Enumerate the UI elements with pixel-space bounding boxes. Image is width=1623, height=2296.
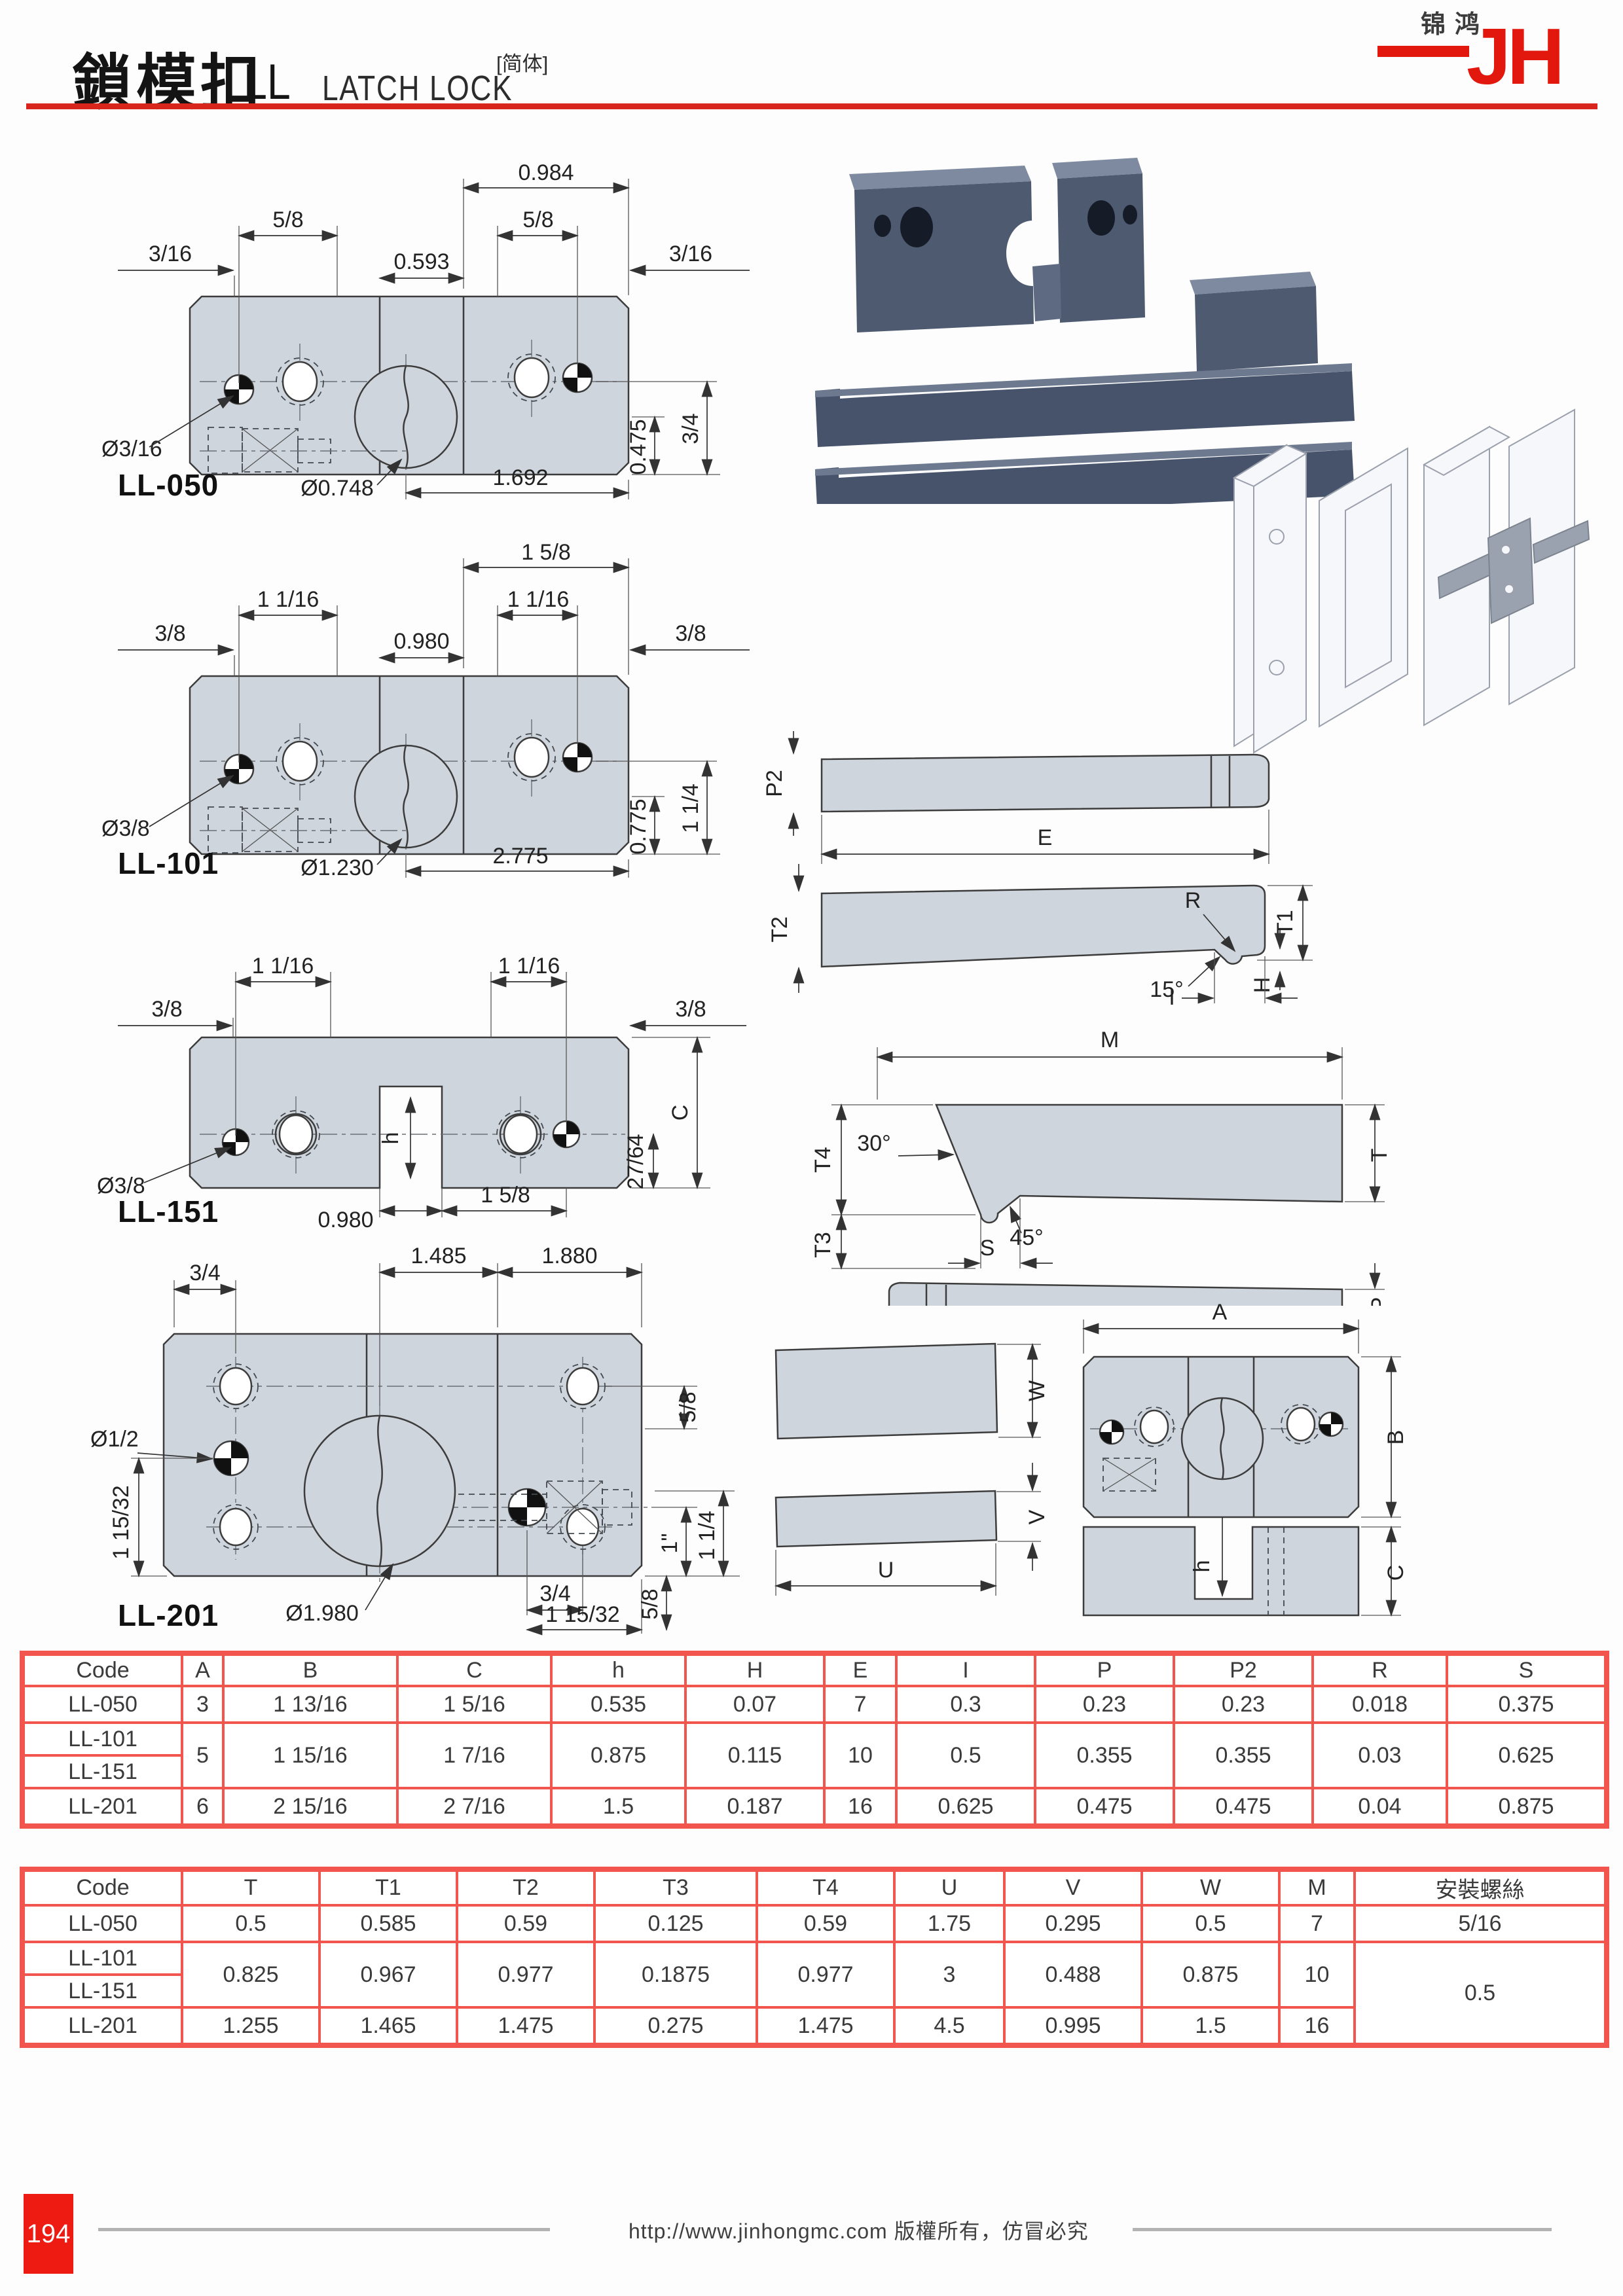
- col-header: T4: [757, 1869, 894, 1905]
- table-row: LL-101 5 1 15/16 1 7/16 0.875 0.115 10 0…: [22, 1723, 1607, 1755]
- cell: 0.475: [1174, 1788, 1313, 1826]
- dim-label: 1 15/32: [109, 1485, 134, 1559]
- ll201-part: [164, 1334, 651, 1583]
- col-header: P2: [1174, 1653, 1313, 1686]
- dim-label: 0.475: [626, 419, 651, 475]
- cell: 0.535: [551, 1686, 685, 1723]
- col-header: A: [182, 1653, 223, 1686]
- col-header: T1: [319, 1869, 457, 1905]
- cell: 4.5: [894, 2007, 1004, 2045]
- dim-label: I: [1169, 985, 1175, 1008]
- cell: 7: [824, 1686, 896, 1723]
- ll151-part: [190, 1037, 629, 1188]
- cell: 0.295: [1004, 1905, 1142, 1942]
- cell: 0.625: [1447, 1723, 1607, 1788]
- dim-label: 1": [657, 1534, 682, 1554]
- cell: 16: [824, 1788, 896, 1826]
- language-note: [简体]: [496, 47, 548, 77]
- cell: 0.375: [1447, 1686, 1607, 1723]
- cell: 0.5: [1355, 1942, 1607, 2045]
- page-title-en: LATCH LOCK: [322, 68, 513, 109]
- cell: 0.977: [757, 1942, 894, 2007]
- table-header-row: Code T T1 T2 T3 T4 U V W M 安裝螺絲: [22, 1869, 1607, 1905]
- cell: 16: [1279, 2007, 1355, 2045]
- dim-label: h: [378, 1132, 403, 1145]
- dim-label: 1 1/16: [507, 587, 570, 612]
- dimension-table-1: Code A B C h H E I P P2 R S LL-050 3 1 1…: [20, 1651, 1609, 1829]
- dim-label: T1: [1273, 910, 1298, 936]
- dim-label: 5/8: [522, 207, 553, 232]
- dim-label: R: [1185, 888, 1201, 913]
- dim-label: U: [878, 1558, 894, 1583]
- dim-label: 3/16: [669, 242, 712, 266]
- cell: 0.825: [182, 1942, 319, 2007]
- catalog-page: 鎖模扣 LL LATCH LOCK [简体] 锦鸿 JH: [0, 0, 1623, 2296]
- cell: LL-201: [22, 2007, 182, 2045]
- page-number: 194: [27, 2219, 71, 2249]
- dim-label: 1.485: [410, 1244, 466, 1268]
- cell: 1.75: [894, 1905, 1004, 1942]
- logo-mark: JH: [1467, 12, 1561, 92]
- dim-label: C: [668, 1105, 693, 1121]
- col-header: I: [896, 1653, 1035, 1686]
- ll050-part: [190, 296, 629, 480]
- cell: 0.125: [594, 1905, 757, 1942]
- page-number-badge: 194: [24, 2194, 73, 2274]
- dim-label: 0.593: [393, 249, 449, 274]
- dim-label: 15°: [1150, 977, 1183, 1002]
- dim-label: 1.880: [541, 1244, 597, 1268]
- cell: 6: [182, 1788, 223, 1826]
- cell: 0.967: [319, 1942, 457, 2007]
- dim-label: A: [1213, 1301, 1228, 1325]
- table-row: LL-050 3 1 13/16 1 5/16 0.535 0.07 7 0.3…: [22, 1686, 1607, 1723]
- col-header: 安裝螺絲: [1355, 1869, 1607, 1905]
- company-logo: 锦鸿 JH: [1375, 3, 1611, 92]
- dim-label: 0.775: [626, 798, 651, 854]
- col-header: U: [894, 1869, 1004, 1905]
- cell: 10: [824, 1723, 896, 1788]
- table-row: LL-201 6 2 15/16 2 7/16 1.5 0.187 16 0.6…: [22, 1788, 1607, 1826]
- dim-label: h: [1190, 1560, 1214, 1573]
- table-row: LL-101 0.825 0.967 0.977 0.1875 0.977 3 …: [22, 1942, 1607, 1975]
- dim-label: Ø3/16: [101, 437, 162, 461]
- dim-label: V: [1025, 1509, 1049, 1524]
- col-header: B: [223, 1653, 397, 1686]
- cell: 0.475: [1035, 1788, 1174, 1826]
- dim-label: 1 1/4: [695, 1511, 720, 1560]
- cell: 0.23: [1174, 1686, 1313, 1723]
- col-header: W: [1142, 1869, 1279, 1905]
- cell: 0.5: [182, 1905, 319, 1942]
- dim-label: 3/8: [675, 997, 706, 1022]
- drawing-ll101: 1 5/8 1 1/16 1 1/16 3/8 0.980 3/8 Ø3/8 Ø…: [39, 501, 759, 880]
- cell: 0.23: [1035, 1686, 1174, 1723]
- dim-label: 3/8: [151, 997, 182, 1022]
- cell: LL-101: [22, 1723, 182, 1755]
- drawing-ll151: 1 1/16 1 1/16 3/8 3/8 Ø3/8 h C 0.980 1 5…: [39, 880, 759, 1230]
- dim-label: 3/8: [675, 621, 706, 646]
- part-code: LL-201: [118, 1598, 219, 1632]
- dim-label: T3: [811, 1232, 835, 1258]
- cell: 0.5: [896, 1723, 1035, 1788]
- dim-label: C: [1383, 1565, 1408, 1581]
- cell: 1 15/16: [223, 1723, 397, 1788]
- dim-label: 1 1/16: [498, 954, 560, 978]
- latch-block-plan: [1084, 1357, 1359, 1517]
- col-header: R: [1313, 1653, 1447, 1686]
- cell: 0.875: [1447, 1788, 1607, 1826]
- col-header: h: [551, 1653, 685, 1686]
- dim-label: 1 1/4: [678, 783, 703, 833]
- dim-label: T4: [811, 1147, 835, 1173]
- dim-label: Ø1.980: [285, 1601, 359, 1626]
- col-header: P: [1035, 1653, 1174, 1686]
- cell: 0.04: [1313, 1788, 1447, 1826]
- dim-label: 30°: [857, 1131, 890, 1156]
- cell: 3: [182, 1686, 223, 1723]
- cell: 0.187: [685, 1788, 824, 1826]
- cell: 1.255: [182, 2007, 319, 2045]
- cell: 0.488: [1004, 1942, 1142, 2007]
- dim-label: H: [1250, 977, 1275, 994]
- cell: 0.585: [319, 1905, 457, 1942]
- diagram-plan-views: W V U A: [737, 1301, 1607, 1625]
- cell: 0.115: [685, 1723, 824, 1788]
- drawing-ll050: 0.984 5/8 5/8 3/16 0.593 3/16 Ø3/16 Ø0.7…: [39, 121, 759, 504]
- cell: 1 7/16: [397, 1723, 551, 1788]
- cell: 7: [1279, 1905, 1355, 1942]
- dim-label: 1 15/32: [545, 1602, 619, 1627]
- dim-label: 0.980: [318, 1208, 373, 1230]
- logo-bar: [1377, 46, 1469, 57]
- col-header: C: [397, 1653, 551, 1686]
- cell: 1.5: [551, 1788, 685, 1826]
- table-header-row: Code A B C h H E I P P2 R S: [22, 1653, 1607, 1686]
- cell: 1 5/16: [397, 1686, 551, 1723]
- dim-label: Ø0.748: [301, 476, 374, 501]
- dim-label: M: [1101, 1028, 1119, 1052]
- dim-label: 45°: [1010, 1225, 1043, 1250]
- col-header: V: [1004, 1869, 1142, 1905]
- diagram-strike-and-latch: P2 E R T2 T1 H 15° I: [759, 730, 1427, 1008]
- cell: LL-101: [22, 1942, 182, 1975]
- cell: LL-050: [22, 1905, 182, 1942]
- dim-label: 2.775: [492, 844, 548, 869]
- cell: 2 7/16: [397, 1788, 551, 1826]
- cell: 10: [1279, 1942, 1355, 2007]
- dim-label: B: [1383, 1430, 1408, 1445]
- dim-label: 5/8: [272, 207, 303, 232]
- cell: 0.875: [1142, 1942, 1279, 2007]
- cell: 0.625: [896, 1788, 1035, 1826]
- dimension-table-2: Code T T1 T2 T3 T4 U V W M 安裝螺絲 LL-050 0…: [20, 1867, 1609, 2048]
- cell: 0.1875: [594, 1942, 757, 2007]
- dim-label: 1 1/16: [257, 587, 319, 612]
- col-header: M: [1279, 1869, 1355, 1905]
- cell: 0.018: [1313, 1686, 1447, 1723]
- dim-label: 5/8: [638, 1588, 663, 1619]
- cell: 0.995: [1004, 2007, 1142, 2045]
- col-header: Code: [22, 1869, 182, 1905]
- diagram-catch-and-spring: M T4 30° 45° S T3 T P: [759, 1008, 1427, 1306]
- cell: 0.03: [1313, 1723, 1447, 1788]
- col-header: H: [685, 1653, 824, 1686]
- cell: 0.977: [457, 1942, 594, 2007]
- dim-label: Ø3/8: [101, 816, 150, 841]
- cell: 1.475: [457, 2007, 594, 2045]
- dim-label: 1 5/8: [521, 540, 571, 565]
- drawing-ll201: 3/4 1.485 1.880 5/8 Ø1/2 1 15/32 Ø1.980 …: [39, 1229, 759, 1638]
- dim-label: W: [1025, 1380, 1049, 1401]
- cell: 0.59: [457, 1905, 594, 1942]
- mold-isometric-view: [1208, 386, 1614, 766]
- cell: 3: [894, 1942, 1004, 2007]
- dim-label: Ø1/2: [90, 1427, 139, 1452]
- dim-label: T2: [767, 916, 792, 942]
- dim-label: 1 1/16: [252, 954, 314, 978]
- copyright-text: http://www.jinhongmc.com 版權所有，仿冒必究: [629, 2215, 1089, 2245]
- dim-label: 3/16: [149, 242, 192, 266]
- cell: LL-151: [22, 1755, 182, 1788]
- cell: LL-201: [22, 1788, 182, 1826]
- cell: 0.3: [896, 1686, 1035, 1723]
- col-header: S: [1447, 1653, 1607, 1686]
- cell: 1.465: [319, 2007, 457, 2045]
- cell: LL-151: [22, 1975, 182, 2007]
- dim-label: 27/64: [623, 1134, 648, 1189]
- cell: 0.875: [551, 1723, 685, 1788]
- cell: 1 13/16: [223, 1686, 397, 1723]
- cell: 2 15/16: [223, 1788, 397, 1826]
- ll101-part: [190, 676, 629, 859]
- cell: 0.275: [594, 2007, 757, 2045]
- dim-label: 1 5/8: [481, 1183, 530, 1208]
- header-rule: [26, 103, 1597, 109]
- cell: 5/16: [1355, 1905, 1607, 1942]
- dim-label: Ø1.230: [301, 855, 374, 880]
- dim-label: 3/8: [155, 621, 185, 646]
- footer-rule-right: [1133, 2228, 1552, 2231]
- cell: 1.475: [757, 2007, 894, 2045]
- dim-label: 0.980: [393, 629, 449, 654]
- col-header: T2: [457, 1869, 594, 1905]
- dim-label: P2: [762, 770, 787, 797]
- dim-label: 0.984: [518, 160, 574, 185]
- cell: LL-050: [22, 1686, 182, 1723]
- photo-latch-blocks: [849, 158, 1318, 372]
- dim-label: S: [980, 1236, 995, 1261]
- part-code: LL-101: [118, 846, 219, 880]
- table-row: LL-050 0.5 0.585 0.59 0.125 0.59 1.75 0.…: [22, 1905, 1607, 1942]
- col-header: T3: [594, 1869, 757, 1905]
- cell: 0.5: [1142, 1905, 1279, 1942]
- dim-label: T: [1367, 1149, 1392, 1162]
- dim-label: 3/4: [678, 413, 703, 444]
- dim-label: 1.692: [492, 465, 548, 490]
- part-code: LL-151: [118, 1194, 219, 1229]
- series-code: LL: [244, 54, 291, 111]
- dim-label: E: [1038, 825, 1053, 850]
- cell: 0.59: [757, 1905, 894, 1942]
- col-header: Code: [22, 1653, 182, 1686]
- cell: 0.07: [685, 1686, 824, 1723]
- cell: 0.355: [1035, 1723, 1174, 1788]
- col-header: T: [182, 1869, 319, 1905]
- cell: 0.355: [1174, 1723, 1313, 1788]
- dim-label: 3/4: [189, 1261, 220, 1285]
- cell: 5: [182, 1723, 223, 1788]
- cell: 1.5: [1142, 2007, 1279, 2045]
- footer-rule-left: [98, 2228, 550, 2231]
- latch-block-front: [1084, 1527, 1359, 1615]
- col-header: E: [824, 1653, 896, 1686]
- dim-label: 5/8: [676, 1391, 701, 1422]
- part-code: LL-050: [118, 468, 219, 502]
